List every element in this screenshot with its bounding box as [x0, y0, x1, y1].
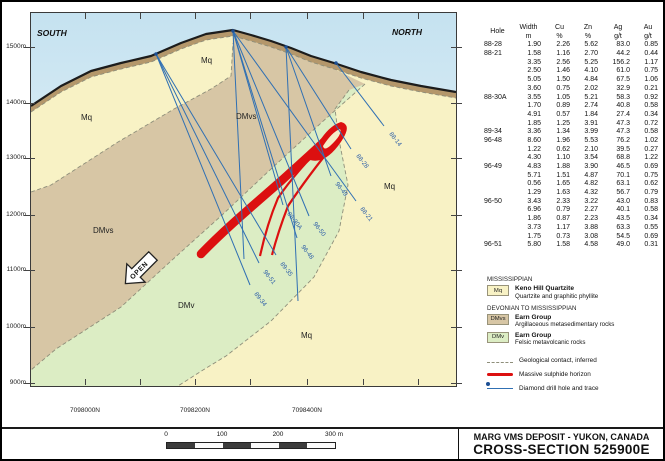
unit-label-mq: Mq [201, 56, 212, 65]
assay-value: 5.05 [512, 76, 545, 85]
assay-value: 0.62 [545, 146, 574, 155]
scale-bar-segments [166, 442, 336, 449]
elevation-label: 1500m [0, 43, 26, 51]
assay-value: 3.08 [574, 233, 602, 242]
northing-tick [363, 379, 364, 385]
assay-row-hole: 88-30A [483, 94, 512, 103]
drill-line-sample [487, 388, 513, 389]
assay-value: 32.9 [602, 85, 634, 94]
assay-row-hole [483, 154, 512, 163]
northing-tick [140, 379, 141, 385]
unit-label-dmvs: DMvs [93, 226, 113, 235]
assay-value: 0.75 [634, 67, 662, 76]
assay-value: 1.50 [545, 76, 574, 85]
assay-value: 0.55 [634, 224, 662, 233]
assay-value: 2.27 [574, 206, 602, 215]
assay-value: 4.87 [574, 172, 602, 181]
elevation-tick [24, 383, 35, 384]
unit-label-mq: Mq [301, 331, 312, 340]
northing-tick [195, 13, 196, 19]
assay-value: 1.63 [545, 189, 574, 198]
assay-value: 0.69 [634, 163, 662, 172]
elevation-tick [24, 327, 35, 328]
assay-value: 63.1 [602, 180, 634, 189]
assay-value: 47.3 [602, 128, 634, 137]
assay-value: 0.73 [545, 233, 574, 242]
title-block: MARG VMS DEPOSIT - YUKON, CANADA CROSS-S… [458, 429, 664, 459]
elevation-label: 1000m [0, 323, 26, 331]
drill-label-legend: Diamond drill hole and trace [519, 385, 599, 392]
assay-value: 0.34 [634, 111, 662, 120]
northing-tick [85, 379, 86, 385]
assay-value: 1.75 [512, 233, 545, 242]
assay-value: 3.55 [512, 94, 545, 103]
assay-value: 0.69 [634, 233, 662, 242]
col-header: Ag [602, 24, 634, 33]
elevation-tick [24, 47, 35, 48]
assay-row-hole [483, 102, 512, 111]
assay-value: 54.5 [602, 233, 634, 242]
assay-value: 1.10 [545, 154, 574, 163]
elevation-tick [451, 215, 462, 216]
assay-value: 1.46 [545, 67, 574, 76]
assay-value: 2.50 [512, 67, 545, 76]
assay-value: 0.75 [634, 172, 662, 181]
assay-value: 0.62 [634, 180, 662, 189]
scale-bar: 0100200300 m [166, 431, 338, 453]
col-header: Au [634, 24, 662, 33]
assay-value: 44.2 [602, 50, 634, 59]
assay-value: 1.85 [512, 120, 545, 129]
assay-value: 40.8 [602, 102, 634, 111]
assay-value: 1.06 [634, 76, 662, 85]
assay-value: 1.22 [512, 146, 545, 155]
assay-value: 0.27 [634, 146, 662, 155]
northing-tick [307, 13, 308, 19]
northing-tick [250, 13, 251, 19]
assay-value: 5.71 [512, 172, 545, 181]
assay-value: 4.32 [574, 189, 602, 198]
assay-value: 0.75 [545, 85, 574, 94]
assay-row-hole: 96-48 [483, 137, 512, 146]
col-header-unit: % [545, 33, 574, 42]
assay-value: 1.29 [512, 189, 545, 198]
assay-value: 0.89 [545, 102, 574, 111]
dmv-name: Earn Group [515, 332, 586, 340]
assay-value: 3.43 [512, 198, 545, 207]
assay-value: 1.88 [545, 163, 574, 172]
northing-tick [250, 379, 251, 385]
assay-value: 70.1 [602, 172, 634, 181]
mq-code: Mq [494, 288, 502, 294]
assay-value: 2.74 [574, 102, 602, 111]
section-title: CROSS-SECTION 525900E [473, 442, 650, 457]
assay-value: 0.31 [634, 241, 662, 250]
assay-value: 0.85 [634, 41, 662, 50]
assay-value: 0.21 [634, 85, 662, 94]
scale-label: 300 m [325, 431, 343, 438]
legend-era-mississippian: MISSISSIPPIAN [487, 276, 663, 283]
legend-item-dmvs: DMvs Earn Group Argillaceous metasedimen… [487, 314, 663, 329]
elevation-label: 1200m [0, 211, 26, 219]
legend-item-contact: Geological contact, inferred [487, 356, 663, 364]
assay-row-hole [483, 224, 512, 233]
assay-value: 3.91 [574, 120, 602, 129]
assay-value: 3.54 [574, 154, 602, 163]
col-header-unit: g/t [634, 33, 662, 42]
scale-label: 200 [273, 431, 284, 438]
assay-value: 0.79 [634, 189, 662, 198]
assay-value: 5.53 [574, 137, 602, 146]
scale-label: 0 [164, 431, 168, 438]
assay-value: 6.96 [512, 206, 545, 215]
assay-value: 49.0 [602, 241, 634, 250]
contact-label: Geological contact, inferred [519, 357, 597, 364]
assay-value: 46.5 [602, 163, 634, 172]
assay-value: 58.3 [602, 94, 634, 103]
assay-value: 3.88 [574, 224, 602, 233]
assay-value: 1.02 [634, 137, 662, 146]
elevation-tick [451, 47, 462, 48]
assay-value: 67.5 [602, 76, 634, 85]
dmv-code: DMv [492, 334, 504, 340]
assay-value: 3.90 [574, 163, 602, 172]
mq-desc: Quartzite and graphitic phyllite [515, 293, 598, 300]
assay-value: 3.22 [574, 198, 602, 207]
assay-value: 4.82 [574, 180, 602, 189]
assay-row-hole [483, 111, 512, 120]
assay-value: 1.51 [545, 172, 574, 181]
elevation-label: 1300m [0, 154, 26, 162]
assay-value: 1.58 [512, 50, 545, 59]
col-header: Zn [574, 24, 602, 33]
assay-value: 1.58 [545, 241, 574, 250]
assay-value: 0.56 [512, 180, 545, 189]
sulphide-line-sample [487, 373, 513, 376]
northing-label: 7098200N [170, 407, 220, 414]
unit-label-dmvs: DMvs [236, 112, 256, 121]
assay-row-hole: 88-28 [483, 41, 512, 50]
col-header: Cu [545, 24, 574, 33]
assay-value: 0.92 [634, 94, 662, 103]
col-header-unit: m [512, 33, 545, 42]
northing-label: 7098400N [282, 407, 332, 414]
assay-value: 1.22 [634, 154, 662, 163]
assay-value: 2.70 [574, 50, 602, 59]
elevation-label: 1100m [0, 266, 26, 274]
assay-value: 1.70 [512, 102, 545, 111]
assay-value: 43.0 [602, 198, 634, 207]
legend-item-mq: Mq Keno Hill Quartzite Quartzite and gra… [487, 285, 663, 300]
northing-label: 7098000N [60, 407, 110, 414]
assay-value: 1.65 [545, 180, 574, 189]
assay-value: 0.58 [634, 206, 662, 215]
assay-value: 27.4 [602, 111, 634, 120]
assay-row-hole: 89-34 [483, 128, 512, 137]
deposit-title: MARG VMS DEPOSIT - YUKON, CANADA [474, 432, 650, 442]
assay-row-hole [483, 189, 512, 198]
elevation-label: 900m [0, 379, 26, 387]
assay-value: 0.58 [634, 102, 662, 111]
elevation-tick [24, 158, 35, 159]
assay-value: 4.58 [574, 241, 602, 250]
elevation-tick [24, 103, 35, 104]
contact-line-sample [487, 362, 513, 363]
assay-value: 1.84 [574, 111, 602, 120]
assay-value: 1.90 [512, 41, 545, 50]
assay-value: 3.99 [574, 128, 602, 137]
assay-value: 1.17 [634, 59, 662, 68]
assay-value: 47.3 [602, 120, 634, 129]
assay-value: 2.02 [574, 85, 602, 94]
assay-value: 3.36 [512, 128, 545, 137]
assay-value: 0.58 [634, 128, 662, 137]
elevation-label: 1400m [0, 99, 26, 107]
northing-tick [418, 379, 419, 385]
assay-row-hole [483, 233, 512, 242]
assay-value: 1.05 [545, 94, 574, 103]
northing-tick [307, 379, 308, 385]
assay-value: 0.57 [545, 111, 574, 120]
assay-value: 76.2 [602, 137, 634, 146]
assay-value: 2.33 [545, 198, 574, 207]
assay-value: 3.73 [512, 224, 545, 233]
northing-tick [140, 13, 141, 19]
assay-row-hole: 88-21 [483, 50, 512, 59]
assay-row-hole [483, 120, 512, 129]
assay-value: 56.7 [602, 189, 634, 198]
dmvs-desc: Argillaceous metasedimentary rocks [515, 321, 614, 328]
assay-value: 0.44 [634, 50, 662, 59]
drill-collar [284, 45, 287, 48]
assay-value: 3.35 [512, 59, 545, 68]
elevation-tick [24, 215, 35, 216]
cross-section-sheet: OPEN 88-1488-2896-4988-2196-5088-30A96-4… [0, 0, 665, 461]
legend: MISSISSIPPIAN Mq Keno Hill Quartzite Qua… [485, 276, 663, 398]
legend-era-devonian: DEVONIAN TO MISSISSIPPIAN [487, 305, 663, 312]
assay-row-hole [483, 146, 512, 155]
drill-collar [231, 29, 234, 32]
drill-collar [154, 52, 157, 55]
assay-value: 0.87 [545, 215, 574, 224]
assay-value: 1.17 [545, 224, 574, 233]
assay-value: 4.10 [574, 67, 602, 76]
assay-row-hole: 96-50 [483, 198, 512, 207]
assay-value: 5.25 [574, 59, 602, 68]
sulphide-label: Massive sulphide horizon [519, 371, 591, 378]
assay-value: 0.79 [545, 206, 574, 215]
northing-tick [195, 379, 196, 385]
assay-value: 4.30 [512, 154, 545, 163]
assay-value: 3.60 [512, 85, 545, 94]
assay-row-hole [483, 85, 512, 94]
dmv-swatch: DMv [487, 332, 509, 343]
col-header: Width [512, 24, 545, 33]
elevation-tick [451, 383, 462, 384]
drill-collar [334, 61, 337, 64]
assay-row-hole [483, 59, 512, 68]
assay-value: 61.0 [602, 67, 634, 76]
assay-value: 4.84 [574, 76, 602, 85]
assay-row-hole: 96-49 [483, 163, 512, 172]
mq-name: Keno Hill Quartzite [515, 285, 598, 293]
scale-label: 100 [217, 431, 228, 438]
assay-row-hole [483, 215, 512, 224]
assay-row-hole: 96-51 [483, 241, 512, 250]
assay-row-hole [483, 172, 512, 181]
assay-value: 4.91 [512, 111, 545, 120]
unit-label-dmv: DMv [178, 301, 194, 310]
assay-value: 1.34 [545, 128, 574, 137]
cross-section-map: OPEN 88-1488-2896-4988-2196-5088-30A96-4… [30, 12, 457, 387]
assay-value: 0.72 [634, 120, 662, 129]
dmvs-code: DMvs [490, 316, 505, 322]
assay-value: 1.25 [545, 120, 574, 129]
dmvs-swatch: DMvs [487, 314, 509, 325]
south-label: SOUTH [37, 28, 67, 38]
legend-item-sulphide: Massive sulphide horizon [487, 370, 663, 378]
col-header-unit: g/t [602, 33, 634, 42]
assay-results-table: HoleWidthmCu%Zn%Agg/tAug/t88-281.902.265… [483, 24, 662, 250]
unit-label-mq: Mq [384, 182, 395, 191]
assay-value: 0.83 [634, 198, 662, 207]
mq-swatch: Mq [487, 285, 509, 296]
elevation-tick [24, 270, 35, 271]
assay-value: 5.80 [512, 241, 545, 250]
northing-tick [363, 13, 364, 19]
assay-value: 40.1 [602, 206, 634, 215]
assay-value: 8.60 [512, 137, 545, 146]
assay-value: 1.86 [512, 215, 545, 224]
elevation-tick [451, 103, 462, 104]
assay-row-hole [483, 206, 512, 215]
assay-value: 5.62 [574, 41, 602, 50]
assay-value: 2.56 [545, 59, 574, 68]
assay-value: 156.2 [602, 59, 634, 68]
legend-item-dmv: DMv Earn Group Felsic metavolcanic rocks [487, 332, 663, 347]
assay-value: 2.23 [574, 215, 602, 224]
dmvs-name: Earn Group [515, 314, 614, 322]
north-label: NORTH [392, 27, 422, 37]
assay-row-hole [483, 180, 512, 189]
assay-value: 1.16 [545, 50, 574, 59]
assay-value: 2.26 [545, 41, 574, 50]
assay-value: 4.83 [512, 163, 545, 172]
assay-value: 68.8 [602, 154, 634, 163]
assay-value: 39.5 [602, 146, 634, 155]
legend-item-drill: Diamond drill hole and trace [487, 384, 663, 392]
col-header-unit: % [574, 33, 602, 42]
assay-value: 5.21 [574, 94, 602, 103]
northing-tick [418, 13, 419, 19]
elevation-tick [451, 327, 462, 328]
dmv-desc: Felsic metavolcanic rocks [515, 339, 586, 346]
assay-value: 43.5 [602, 215, 634, 224]
unit-label-mq: Mq [81, 113, 92, 122]
assay-row-hole [483, 76, 512, 85]
northing-tick [85, 13, 86, 19]
cross-section-svg: OPEN 88-1488-2896-4988-2196-5088-30A96-4… [31, 13, 456, 386]
assay-value: 0.34 [634, 215, 662, 224]
assay-value: 63.3 [602, 224, 634, 233]
col-header-hole: Hole [483, 28, 512, 37]
elevation-tick [451, 270, 462, 271]
assay-value: 83.0 [602, 41, 634, 50]
assay-value: 2.10 [574, 146, 602, 155]
assay-row-hole [483, 67, 512, 76]
assay-value: 1.96 [545, 137, 574, 146]
elevation-tick [451, 158, 462, 159]
